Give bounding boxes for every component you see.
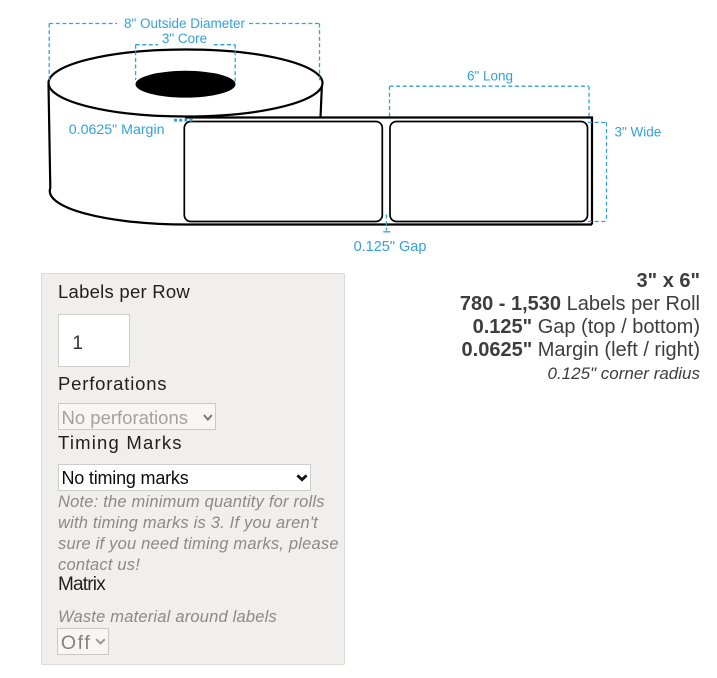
- svg-text:0.0625" Margin: 0.0625" Margin: [69, 122, 165, 138]
- svg-text:8" Outside Diameter: 8" Outside Diameter: [124, 16, 246, 31]
- svg-text:6" Long: 6" Long: [467, 68, 513, 83]
- svg-text:0.125" Gap: 0.125" Gap: [354, 239, 427, 255]
- svg-text:3" Wide: 3" Wide: [615, 125, 662, 140]
- svg-text:3" Core: 3" Core: [162, 31, 207, 46]
